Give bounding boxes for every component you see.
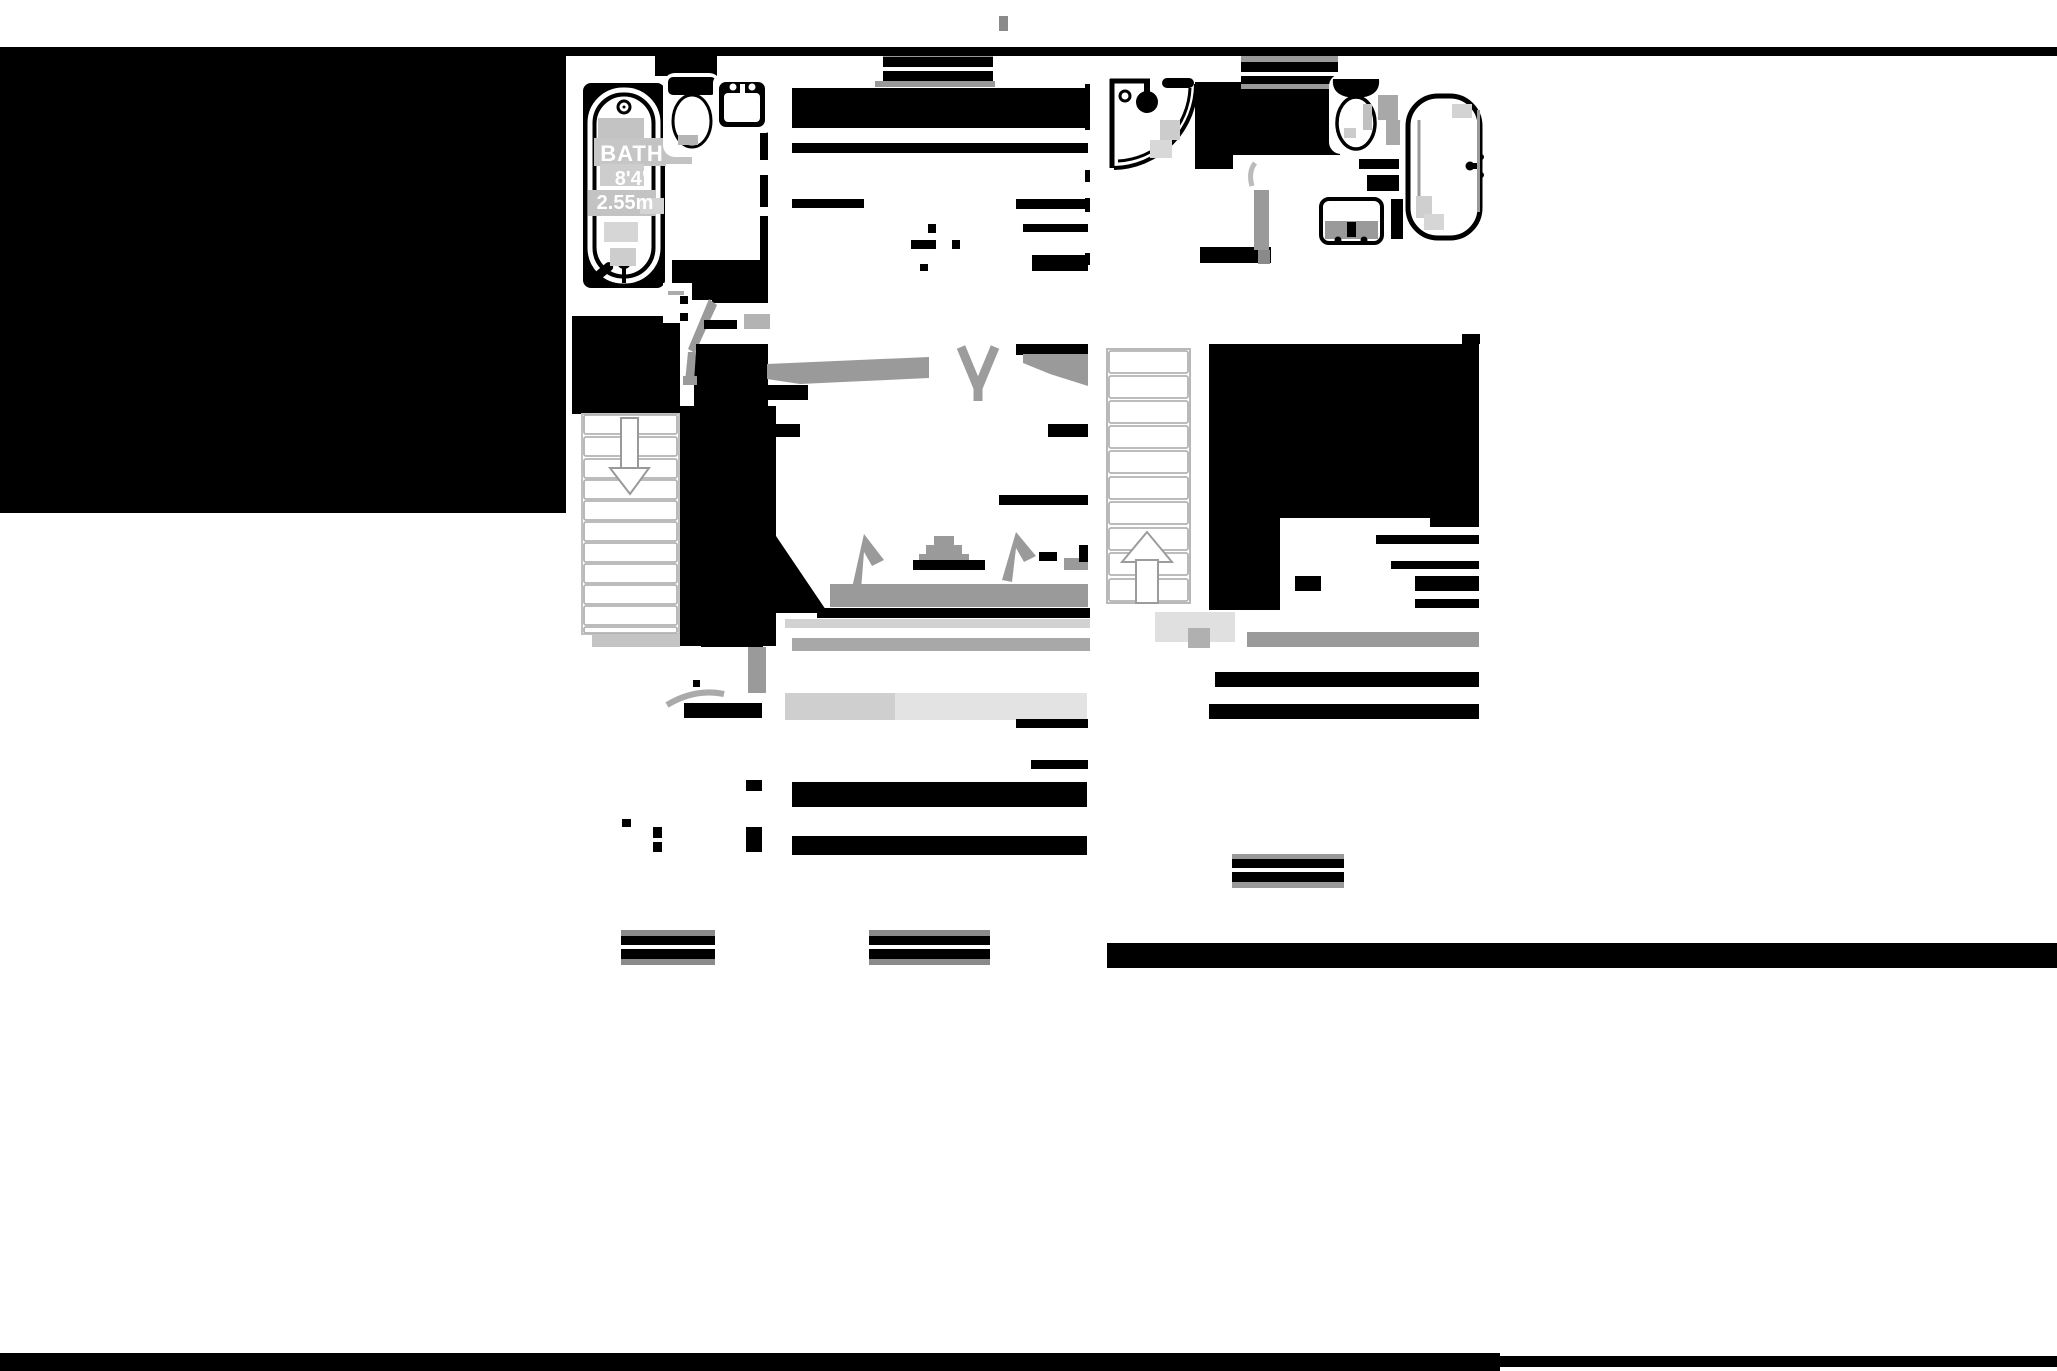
svg-text:8'4": 8'4" — [615, 168, 651, 190]
svg-text:2.55m: 2.55m — [597, 192, 654, 214]
svg-text:BATH: BATH — [600, 141, 663, 166]
